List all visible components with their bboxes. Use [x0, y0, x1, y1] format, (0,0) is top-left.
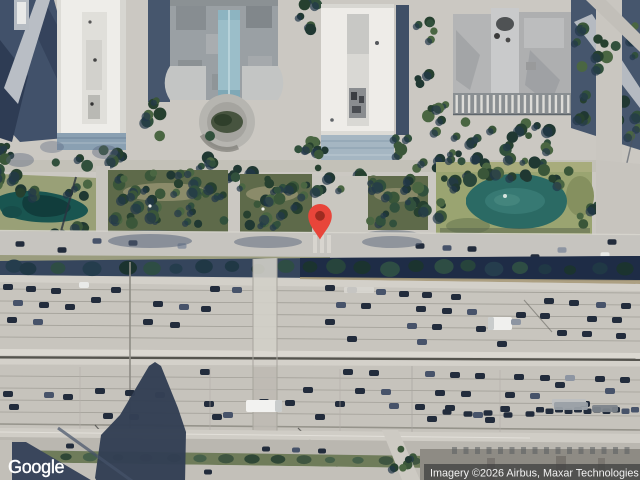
svg-text:Google: Google: [8, 457, 65, 477]
svg-text:Imagery ©2026 Airbus, Maxar Te: Imagery ©2026 Airbus, Maxar Technologies: [430, 468, 639, 480]
